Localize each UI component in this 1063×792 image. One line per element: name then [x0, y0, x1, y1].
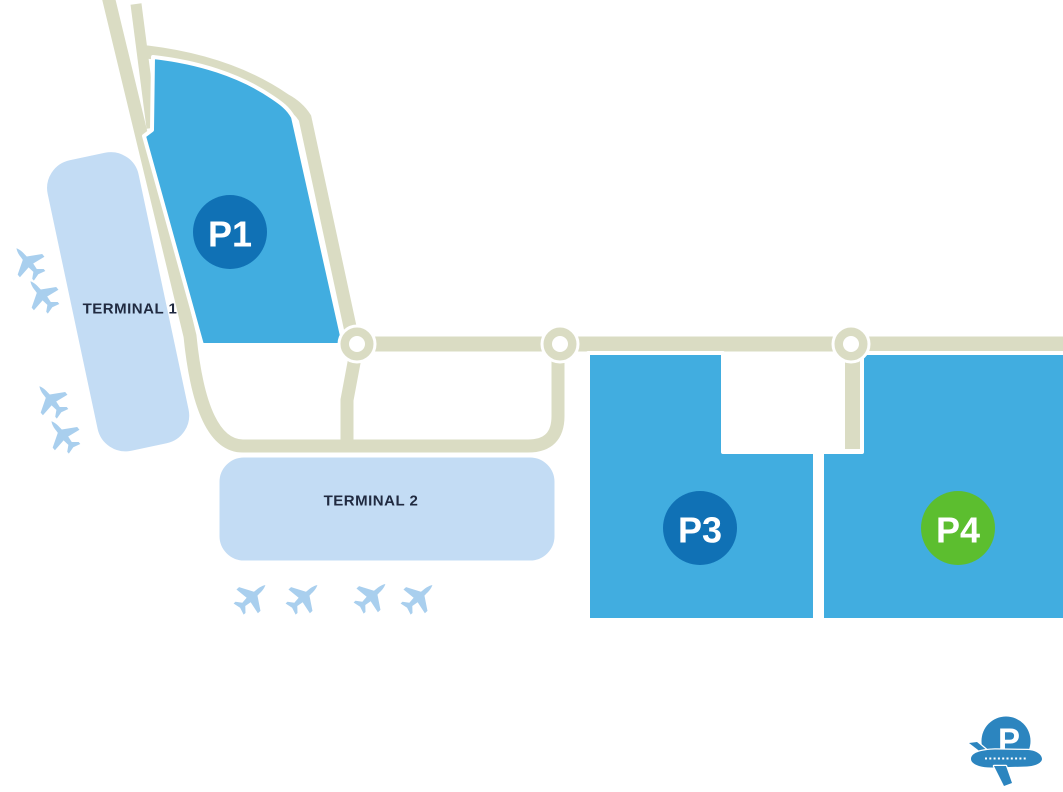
terminal-2-label: TERMINAL 2	[324, 493, 419, 510]
parking-badge-p1[interactable]: P1	[193, 195, 267, 269]
parking-zone-p3[interactable]	[588, 353, 815, 620]
brand-logo[interactable]: P	[969, 717, 1042, 787]
airplane-icon	[4, 238, 52, 286]
airplane-icon	[39, 411, 87, 459]
airplane-icon	[395, 573, 443, 621]
roundabout-west-island	[349, 336, 365, 352]
p4-badge-label: P4	[936, 510, 980, 551]
airplane-icon	[18, 271, 66, 319]
parking-badge-p4[interactable]: P4	[921, 491, 995, 565]
airplane-icon	[228, 573, 276, 621]
airplane-icon	[280, 573, 328, 621]
roundabout-east-island	[843, 336, 859, 352]
airport-parking-map: P1 P3 P4 TERMINAL 1 TERMINAL 2 P	[0, 0, 1063, 792]
airplane-icon	[27, 376, 75, 424]
logo-airplane-tailfin	[994, 766, 1012, 786]
road-terminal-loop-connector	[347, 352, 356, 444]
parking-badge-p3[interactable]: P3	[663, 491, 737, 565]
terminal-1-label: TERMINAL 1	[83, 301, 178, 318]
p3-badge-label: P3	[678, 510, 722, 551]
airplane-icon	[348, 572, 396, 620]
roundabout-center-island	[552, 336, 568, 352]
map-canvas: P1 P3 P4 TERMINAL 1 TERMINAL 2 P	[0, 0, 1063, 792]
p1-badge-label: P1	[208, 214, 252, 255]
